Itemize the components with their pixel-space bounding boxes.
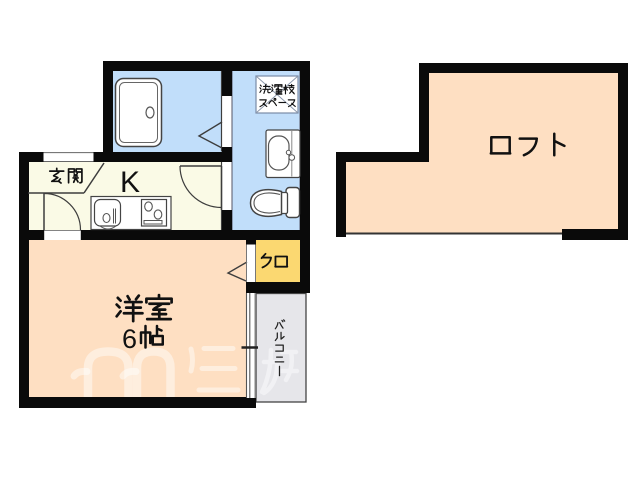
svg-text:K: K [120,166,140,199]
svg-text:6: 6 [122,324,137,354]
